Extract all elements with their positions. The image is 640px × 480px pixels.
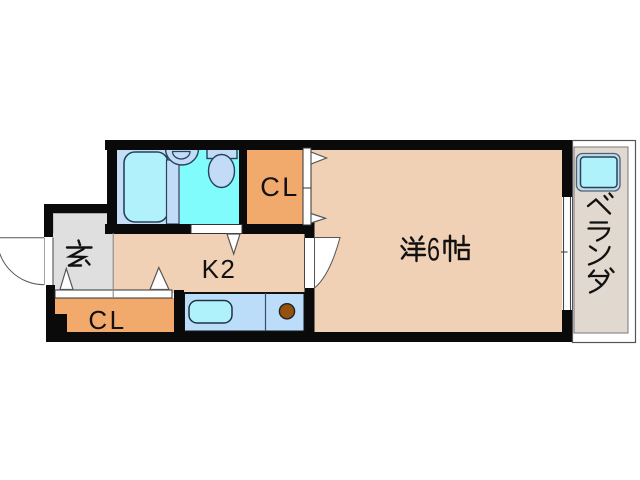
svg-text:K2: K2 xyxy=(202,254,237,284)
svg-text:CL: CL xyxy=(88,305,126,335)
svg-text:6: 6 xyxy=(427,232,440,268)
svg-text:CL: CL xyxy=(260,172,300,202)
